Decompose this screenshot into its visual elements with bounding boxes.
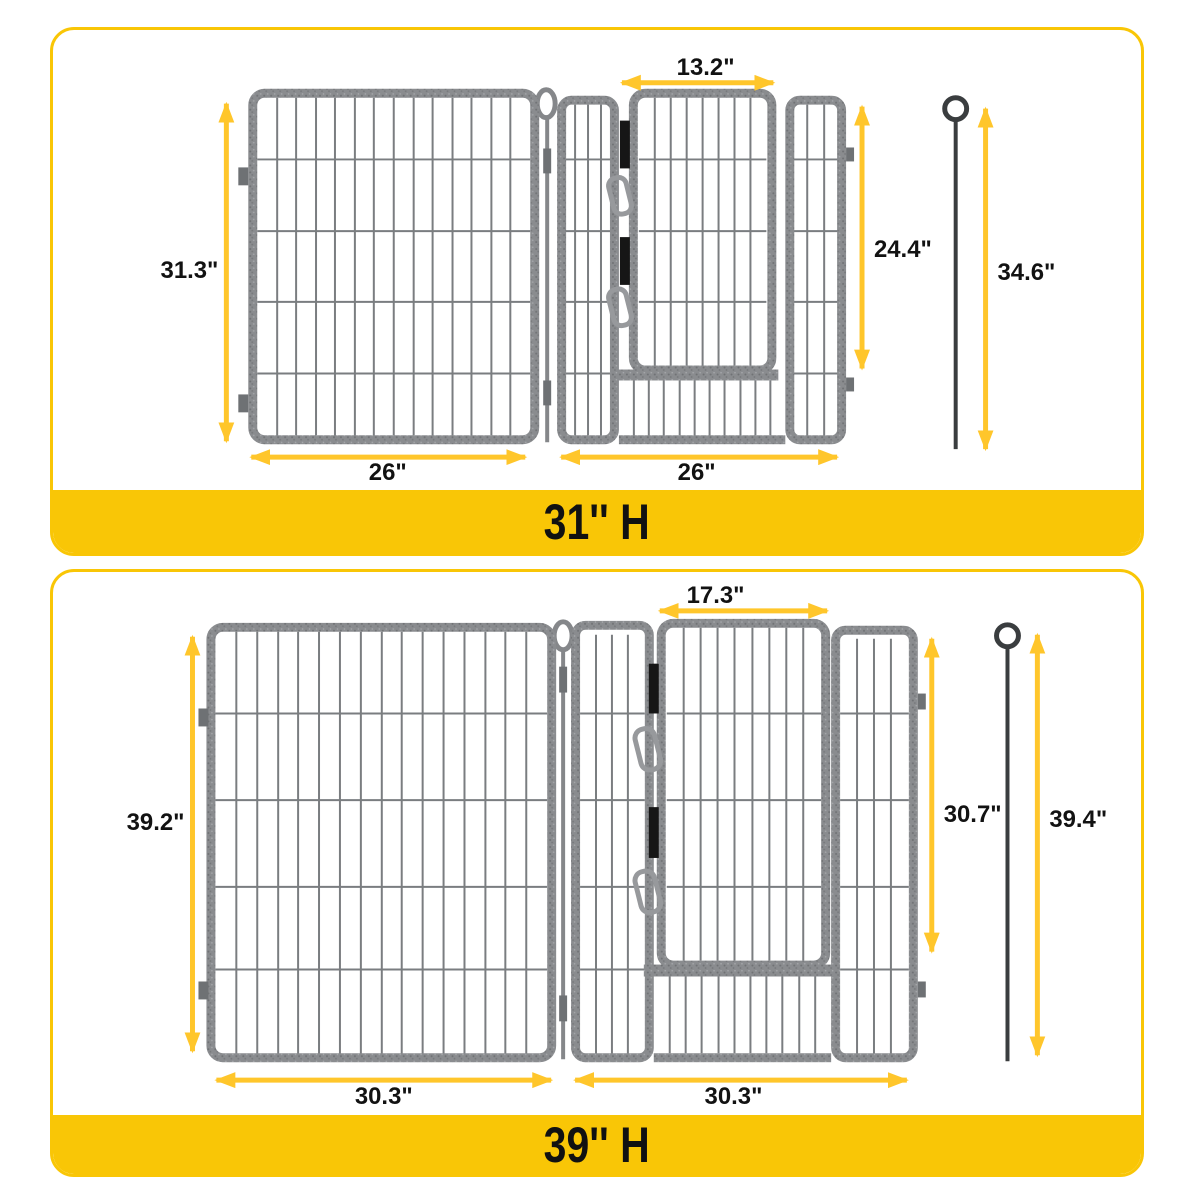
dimension-arrows bbox=[226, 83, 985, 457]
height-banner-31: 31'' H bbox=[53, 490, 1141, 553]
product-dimension-sheet: { "page": {"background": "#FFFFFF"}, "co… bbox=[0, 0, 1200, 1200]
right-panel-width-label: 30.3" bbox=[705, 1083, 763, 1110]
ground-stake-icon bbox=[945, 98, 967, 449]
hinge-strips bbox=[620, 121, 630, 285]
gate-door-frame bbox=[661, 623, 825, 965]
stake-length-label: 39.4" bbox=[1049, 806, 1107, 833]
hinge-loop-icon bbox=[554, 622, 572, 650]
stake-length-label: 34.6" bbox=[998, 259, 1056, 286]
left-panel-width-label: 26" bbox=[369, 459, 407, 486]
gate-bottom-rail bbox=[619, 435, 785, 444]
gate-height-label: 30.7" bbox=[944, 801, 1002, 828]
hinge-loop-icon bbox=[537, 90, 555, 118]
pen-31-card: 31.3" 13.2" 24.4" 34.6" 26" 26" 31'' H bbox=[50, 27, 1144, 556]
under-door-rail bbox=[615, 370, 778, 381]
height-banner-39: 39'' H bbox=[53, 1115, 1141, 1174]
panel-height-label: 39.2" bbox=[127, 809, 185, 836]
gate-width-label: 17.3" bbox=[687, 582, 745, 609]
gate-width-label: 13.2" bbox=[677, 54, 735, 81]
pen-39-card: 39.2" 17.3" 30.7" 39.4" 30.3" 30.3" 39''… bbox=[50, 569, 1144, 1177]
pen-31-diagram: 31.3" 13.2" 24.4" 34.6" 26" 26" bbox=[53, 30, 1141, 491]
gate-bottom-rail bbox=[654, 1053, 831, 1062]
right-panel-width-label: 26" bbox=[678, 459, 716, 486]
height-banner-31-label: 31'' H bbox=[544, 493, 650, 551]
left-panel-width-label: 30.3" bbox=[355, 1083, 413, 1110]
ground-stake-icon bbox=[997, 625, 1019, 1061]
panel-height-label: 31.3" bbox=[161, 257, 219, 284]
gate-height-label: 24.4" bbox=[874, 236, 932, 263]
height-banner-39-label: 39'' H bbox=[544, 1116, 650, 1174]
narrow-panel-b-frame bbox=[790, 100, 842, 440]
under-door-rail bbox=[644, 965, 833, 977]
pen-39-diagram: 39.2" 17.3" 30.7" 39.4" 30.3" 30.3" bbox=[53, 572, 1141, 1116]
